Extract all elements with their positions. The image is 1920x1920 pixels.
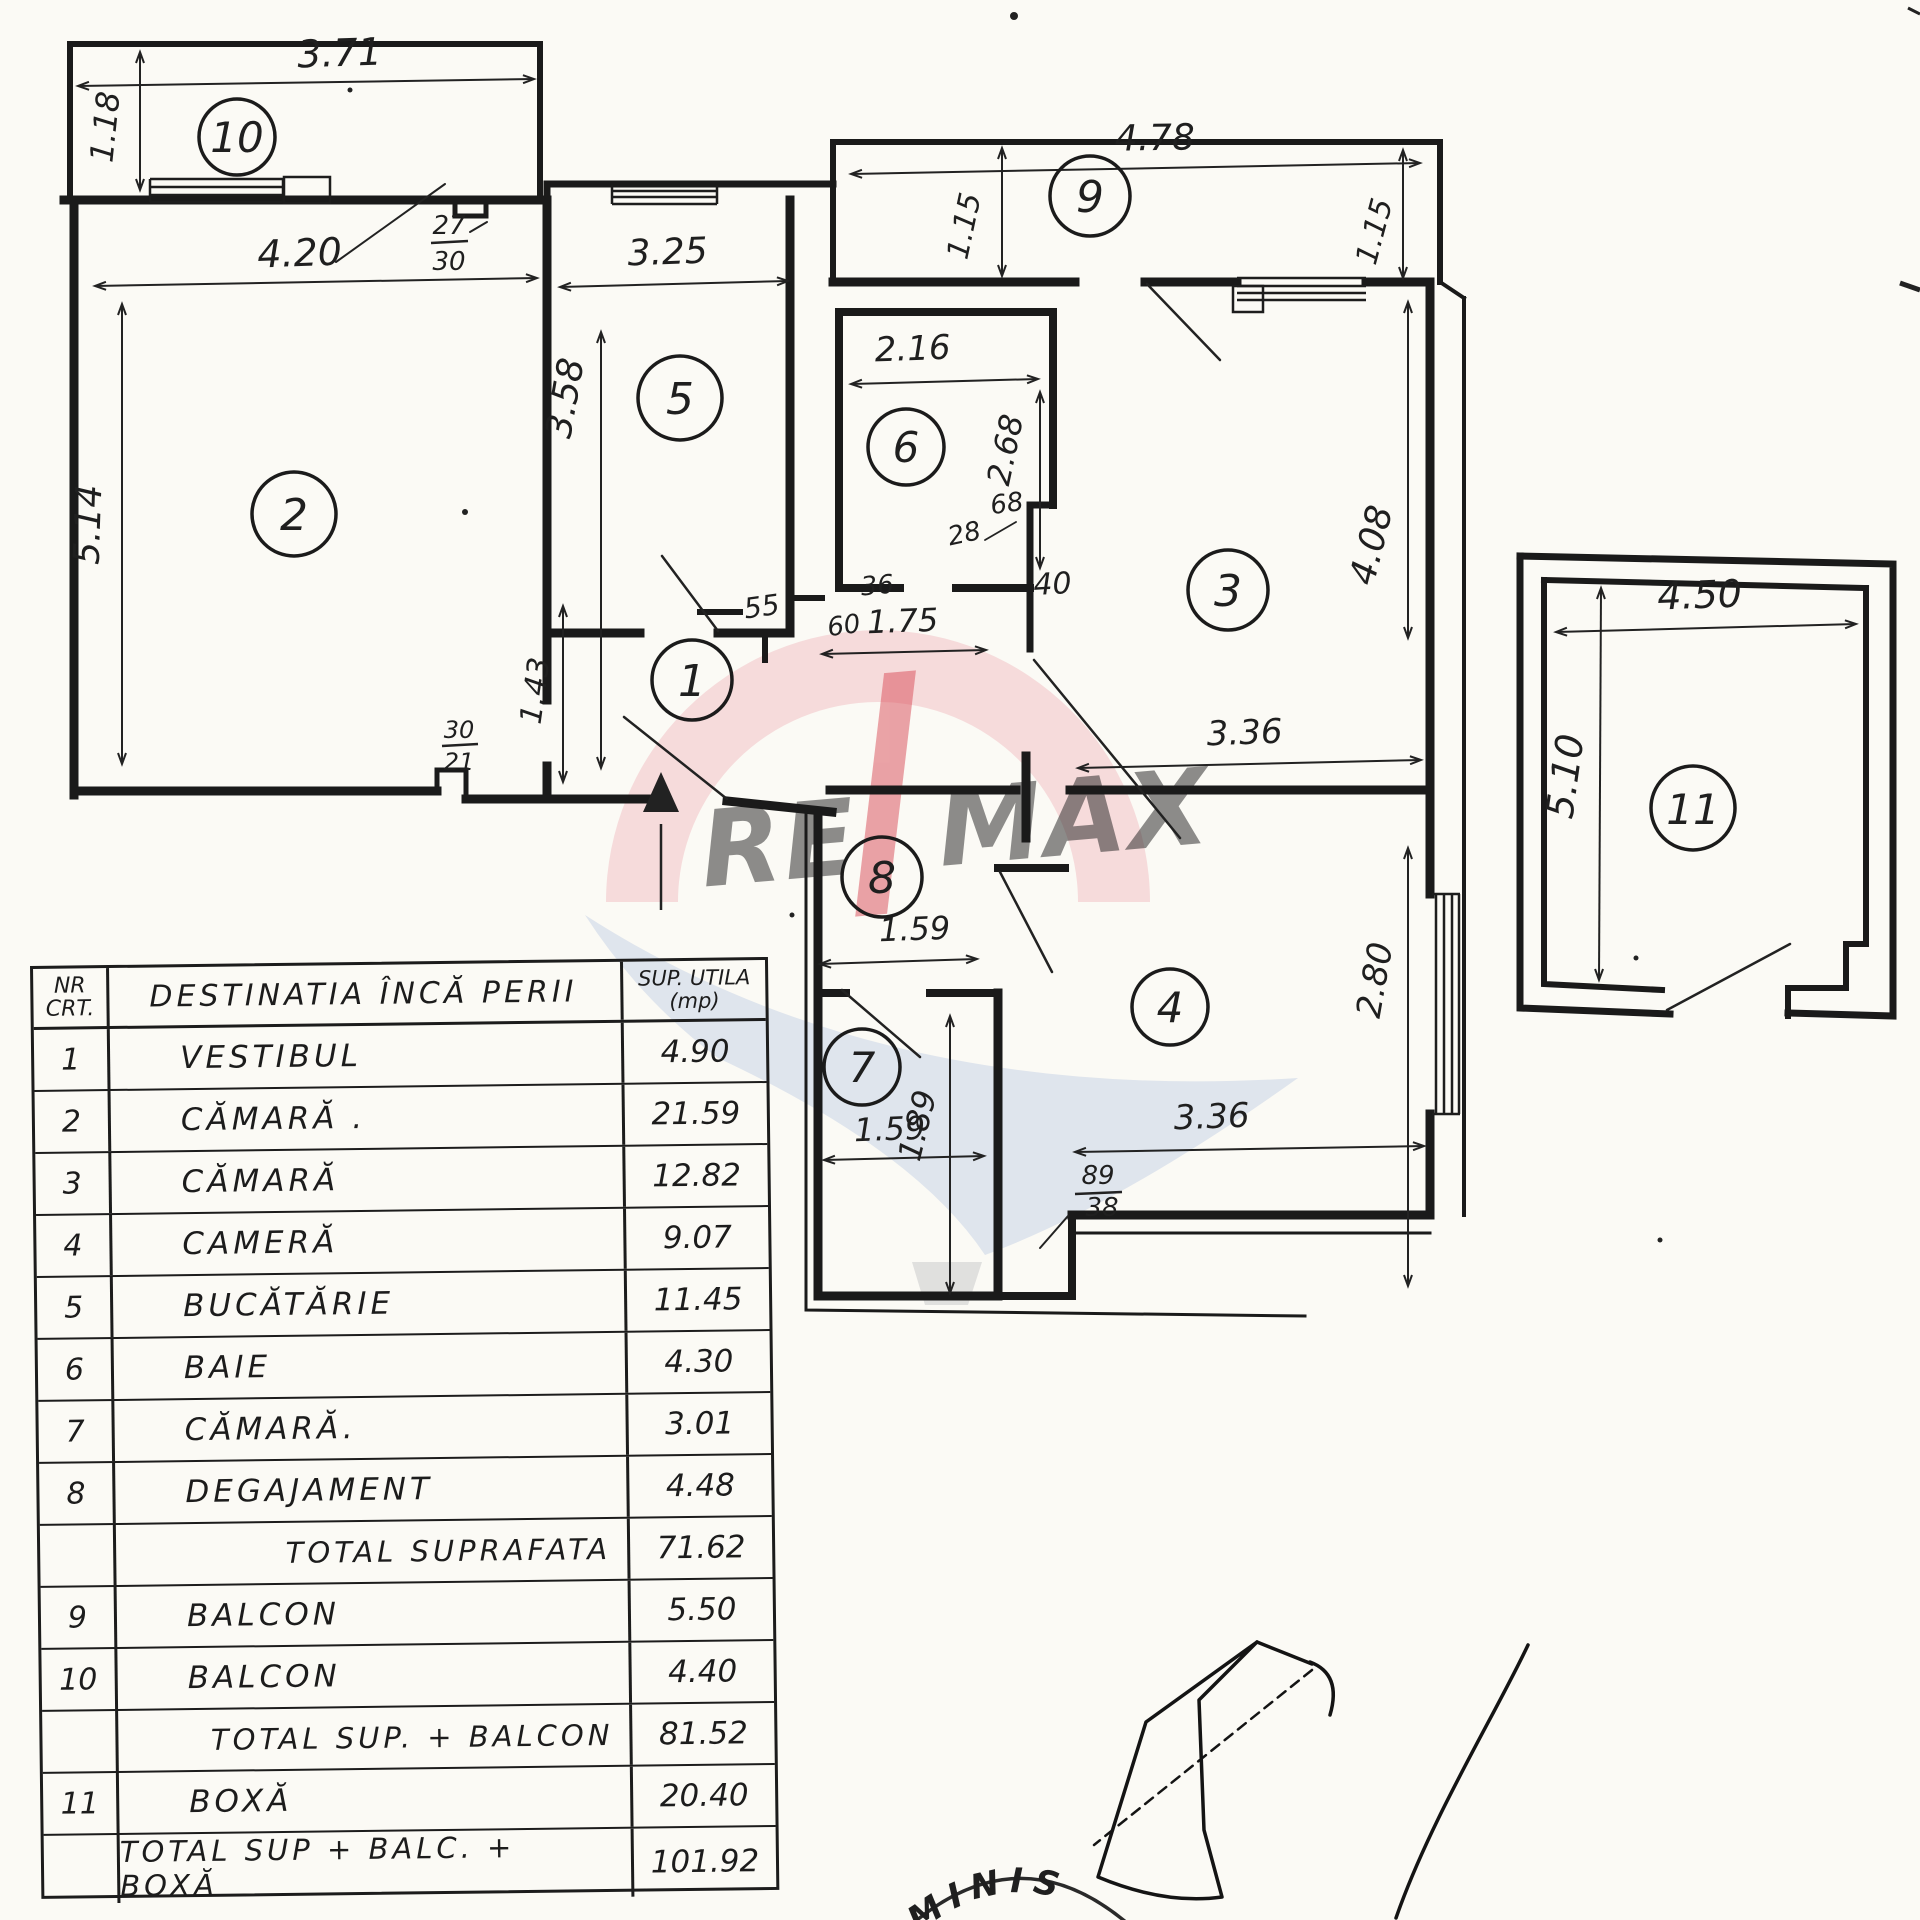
cell-nr [44, 1835, 121, 1904]
dim-36: 36 [860, 570, 896, 603]
dim-3-25: 3.25 [627, 231, 709, 275]
header-sup-utila: SUP. UTILA(mp) [623, 960, 766, 1020]
dim-4-20: 4.20 [256, 230, 342, 277]
cell-nr [40, 1525, 117, 1586]
cell-nr: 6 [38, 1339, 115, 1400]
cell-nr [42, 1711, 119, 1772]
cell-dest: TOTAL SUP. + BALCON [118, 1705, 633, 1771]
svg-text:1: 1 [678, 656, 706, 707]
dim-28: 28 [945, 516, 984, 552]
table-row: 4CAMERĂ9.07 [36, 1205, 769, 1276]
dim-3-71: 3.71 [296, 30, 382, 77]
table-row: 6BAIE4.30 [38, 1329, 771, 1400]
cell-sup: 4.40 [631, 1641, 774, 1703]
svg-text:4: 4 [1157, 983, 1184, 1032]
table-total-row: TOTAL SUP + BALC. + BOXĂ101.92 [44, 1825, 777, 1896]
svg-text:6: 6 [893, 423, 920, 472]
table-row: 2CĂMARĂ .21.59 [35, 1081, 768, 1152]
dim-1-18: 1.18 [82, 89, 127, 164]
cell-nr: 11 [43, 1773, 120, 1834]
fraction-30-21: 30 21 [442, 716, 478, 776]
room-label-4: 4 [1132, 969, 1208, 1045]
cell-nr: 1 [34, 1029, 111, 1090]
cell-sup: 20.40 [633, 1765, 776, 1827]
dim-40: 40 [1033, 566, 1073, 603]
svg-text:5: 5 [666, 374, 694, 425]
cell-nr: 8 [39, 1463, 116, 1524]
room-label-3: 3 [1188, 550, 1268, 630]
cell-dest: CĂMARĂ. [114, 1395, 629, 1461]
header-nr-crt: NRCRT. [33, 968, 110, 1027]
header-destinatia: DESTINATIA ÎNCĂ PERII [109, 962, 624, 1026]
svg-text:8: 8 [868, 853, 896, 904]
room-label-9: 9 [1050, 156, 1130, 236]
dim-2-80: 2.80 [1349, 939, 1402, 1020]
signature-scribble [1094, 1642, 1528, 1918]
dim-68: 68 [988, 487, 1025, 521]
dim-3-36-room4: 3.36 [1173, 1096, 1250, 1139]
room-label-5: 5 [638, 356, 722, 440]
table-total-row: TOTAL SUPRAFATA71.62 [40, 1515, 773, 1586]
cell-dest: BUCĂTĂRIE [113, 1271, 628, 1337]
table-total-row: TOTAL SUP. + BALCON81.52 [42, 1701, 775, 1772]
room-label-2: 2 [252, 472, 336, 556]
cell-sup: 71.62 [630, 1517, 773, 1579]
dim-1-59-bottom: 1.59 [853, 1109, 926, 1149]
table-row: 10BALCON4.40 [41, 1639, 774, 1710]
svg-text:38: 38 [1085, 1193, 1118, 1223]
cell-nr: 3 [35, 1153, 112, 1214]
dim-2-16: 2.16 [874, 328, 951, 371]
cell-dest: BAIE [114, 1333, 629, 1399]
room-label-6: 6 [868, 409, 944, 485]
cell-sup: 12.82 [625, 1145, 768, 1207]
watermark-max: MAX [933, 745, 1218, 891]
cell-dest: CĂMARĂ . [111, 1085, 626, 1151]
table-header: NRCRT. DESTINATIA ÎNCĂ PERII SUP. UTILA(… [33, 960, 766, 1030]
dim-3-36-room3: 3.36 [1206, 712, 1283, 755]
stamp-arc-text: ADMINIS [842, 1861, 1072, 1920]
svg-text:89: 89 [1081, 1161, 1114, 1191]
cell-sup: 101.92 [634, 1827, 777, 1897]
svg-text:27: 27 [432, 211, 466, 241]
table-row: 5BUCĂTĂRIE11.45 [37, 1267, 770, 1338]
svg-text:30: 30 [432, 247, 465, 277]
svg-text:21: 21 [444, 748, 475, 776]
table-row: 1VESTIBUL4.90 [34, 1021, 767, 1090]
svg-text:ADMINIS: ADMINIS [842, 1861, 1072, 1920]
cell-dest: TOTAL SUP + BALC. + BOXĂ [120, 1829, 635, 1903]
cell-dest: BALCON [117, 1581, 632, 1647]
dim-4-50: 4.50 [1656, 572, 1742, 619]
room-label-10: 10 [199, 99, 275, 175]
cell-sup: 4.90 [624, 1021, 767, 1083]
fraction-27-30: 27 30 [431, 211, 468, 277]
table-row: 3CĂMARĂ12.82 [35, 1143, 768, 1214]
cell-nr: 2 [35, 1091, 112, 1152]
cell-nr: 7 [38, 1401, 115, 1462]
watermark-re: RE [696, 776, 863, 911]
dim-1-15-left: 1.15 [941, 190, 989, 263]
cell-sup: 4.30 [628, 1331, 771, 1393]
cell-sup: 21.59 [624, 1083, 767, 1145]
dim-4-08: 4.08 [1342, 501, 1401, 589]
cell-sup: 4.48 [629, 1455, 772, 1517]
svg-text:7: 7 [849, 1043, 876, 1092]
svg-text:11: 11 [1666, 785, 1719, 834]
cell-nr: 9 [41, 1587, 118, 1648]
svg-text:3: 3 [1214, 566, 1242, 617]
svg-text:10: 10 [210, 113, 263, 162]
scanned-floor-plan-page: RE MAX [0, 0, 1920, 1920]
cell-nr: 10 [41, 1649, 118, 1710]
cell-sup: 11.45 [627, 1269, 770, 1331]
cell-dest: CĂMARĂ [111, 1147, 626, 1213]
dim-1-15-right: 1.15 [1349, 195, 1400, 269]
room-label-11: 11 [1651, 766, 1735, 850]
cell-dest: VESTIBUL [110, 1023, 625, 1089]
table-row: 9BALCON5.50 [41, 1577, 774, 1648]
table-row: 8DEGAJAMENT4.48 [39, 1453, 772, 1524]
cell-sup: 3.01 [628, 1393, 771, 1455]
svg-text:9: 9 [1076, 172, 1104, 223]
table-row: 7CĂMARĂ.3.01 [38, 1391, 771, 1462]
cell-dest: CAMERĂ [112, 1209, 627, 1275]
dim-60: 60 [825, 609, 862, 643]
svg-text:30: 30 [444, 716, 475, 744]
dim-5-14: 5.14 [67, 484, 111, 566]
cell-nr: 5 [37, 1277, 114, 1338]
dim-2-68: 2.68 [979, 411, 1031, 489]
cell-sup: 81.52 [632, 1703, 775, 1765]
table-row: 11BOXĂ20.40 [43, 1763, 776, 1834]
cell-dest: TOTAL SUPRAFATA [116, 1519, 631, 1585]
cell-nr: 4 [36, 1215, 113, 1276]
cell-dest: DEGAJAMENT [115, 1457, 630, 1523]
cell-dest: BOXĂ [119, 1767, 634, 1833]
dim-4-78: 4.78 [1114, 117, 1195, 159]
dim-1-75: 1.75 [866, 601, 939, 641]
table-rows: 1VESTIBUL4.902CĂMARĂ .21.593CĂMARĂ12.824… [34, 1021, 777, 1896]
svg-text:2: 2 [280, 490, 308, 541]
dim-1-43: 1.43 [514, 655, 558, 726]
area-table: NRCRT. DESTINATIA ÎNCĂ PERII SUP. UTILA(… [30, 957, 779, 1899]
dim-55: 55 [742, 588, 782, 626]
cell-dest: BALCON [117, 1643, 632, 1709]
cell-sup: 9.07 [626, 1207, 769, 1269]
cell-sup: 5.50 [631, 1579, 774, 1641]
